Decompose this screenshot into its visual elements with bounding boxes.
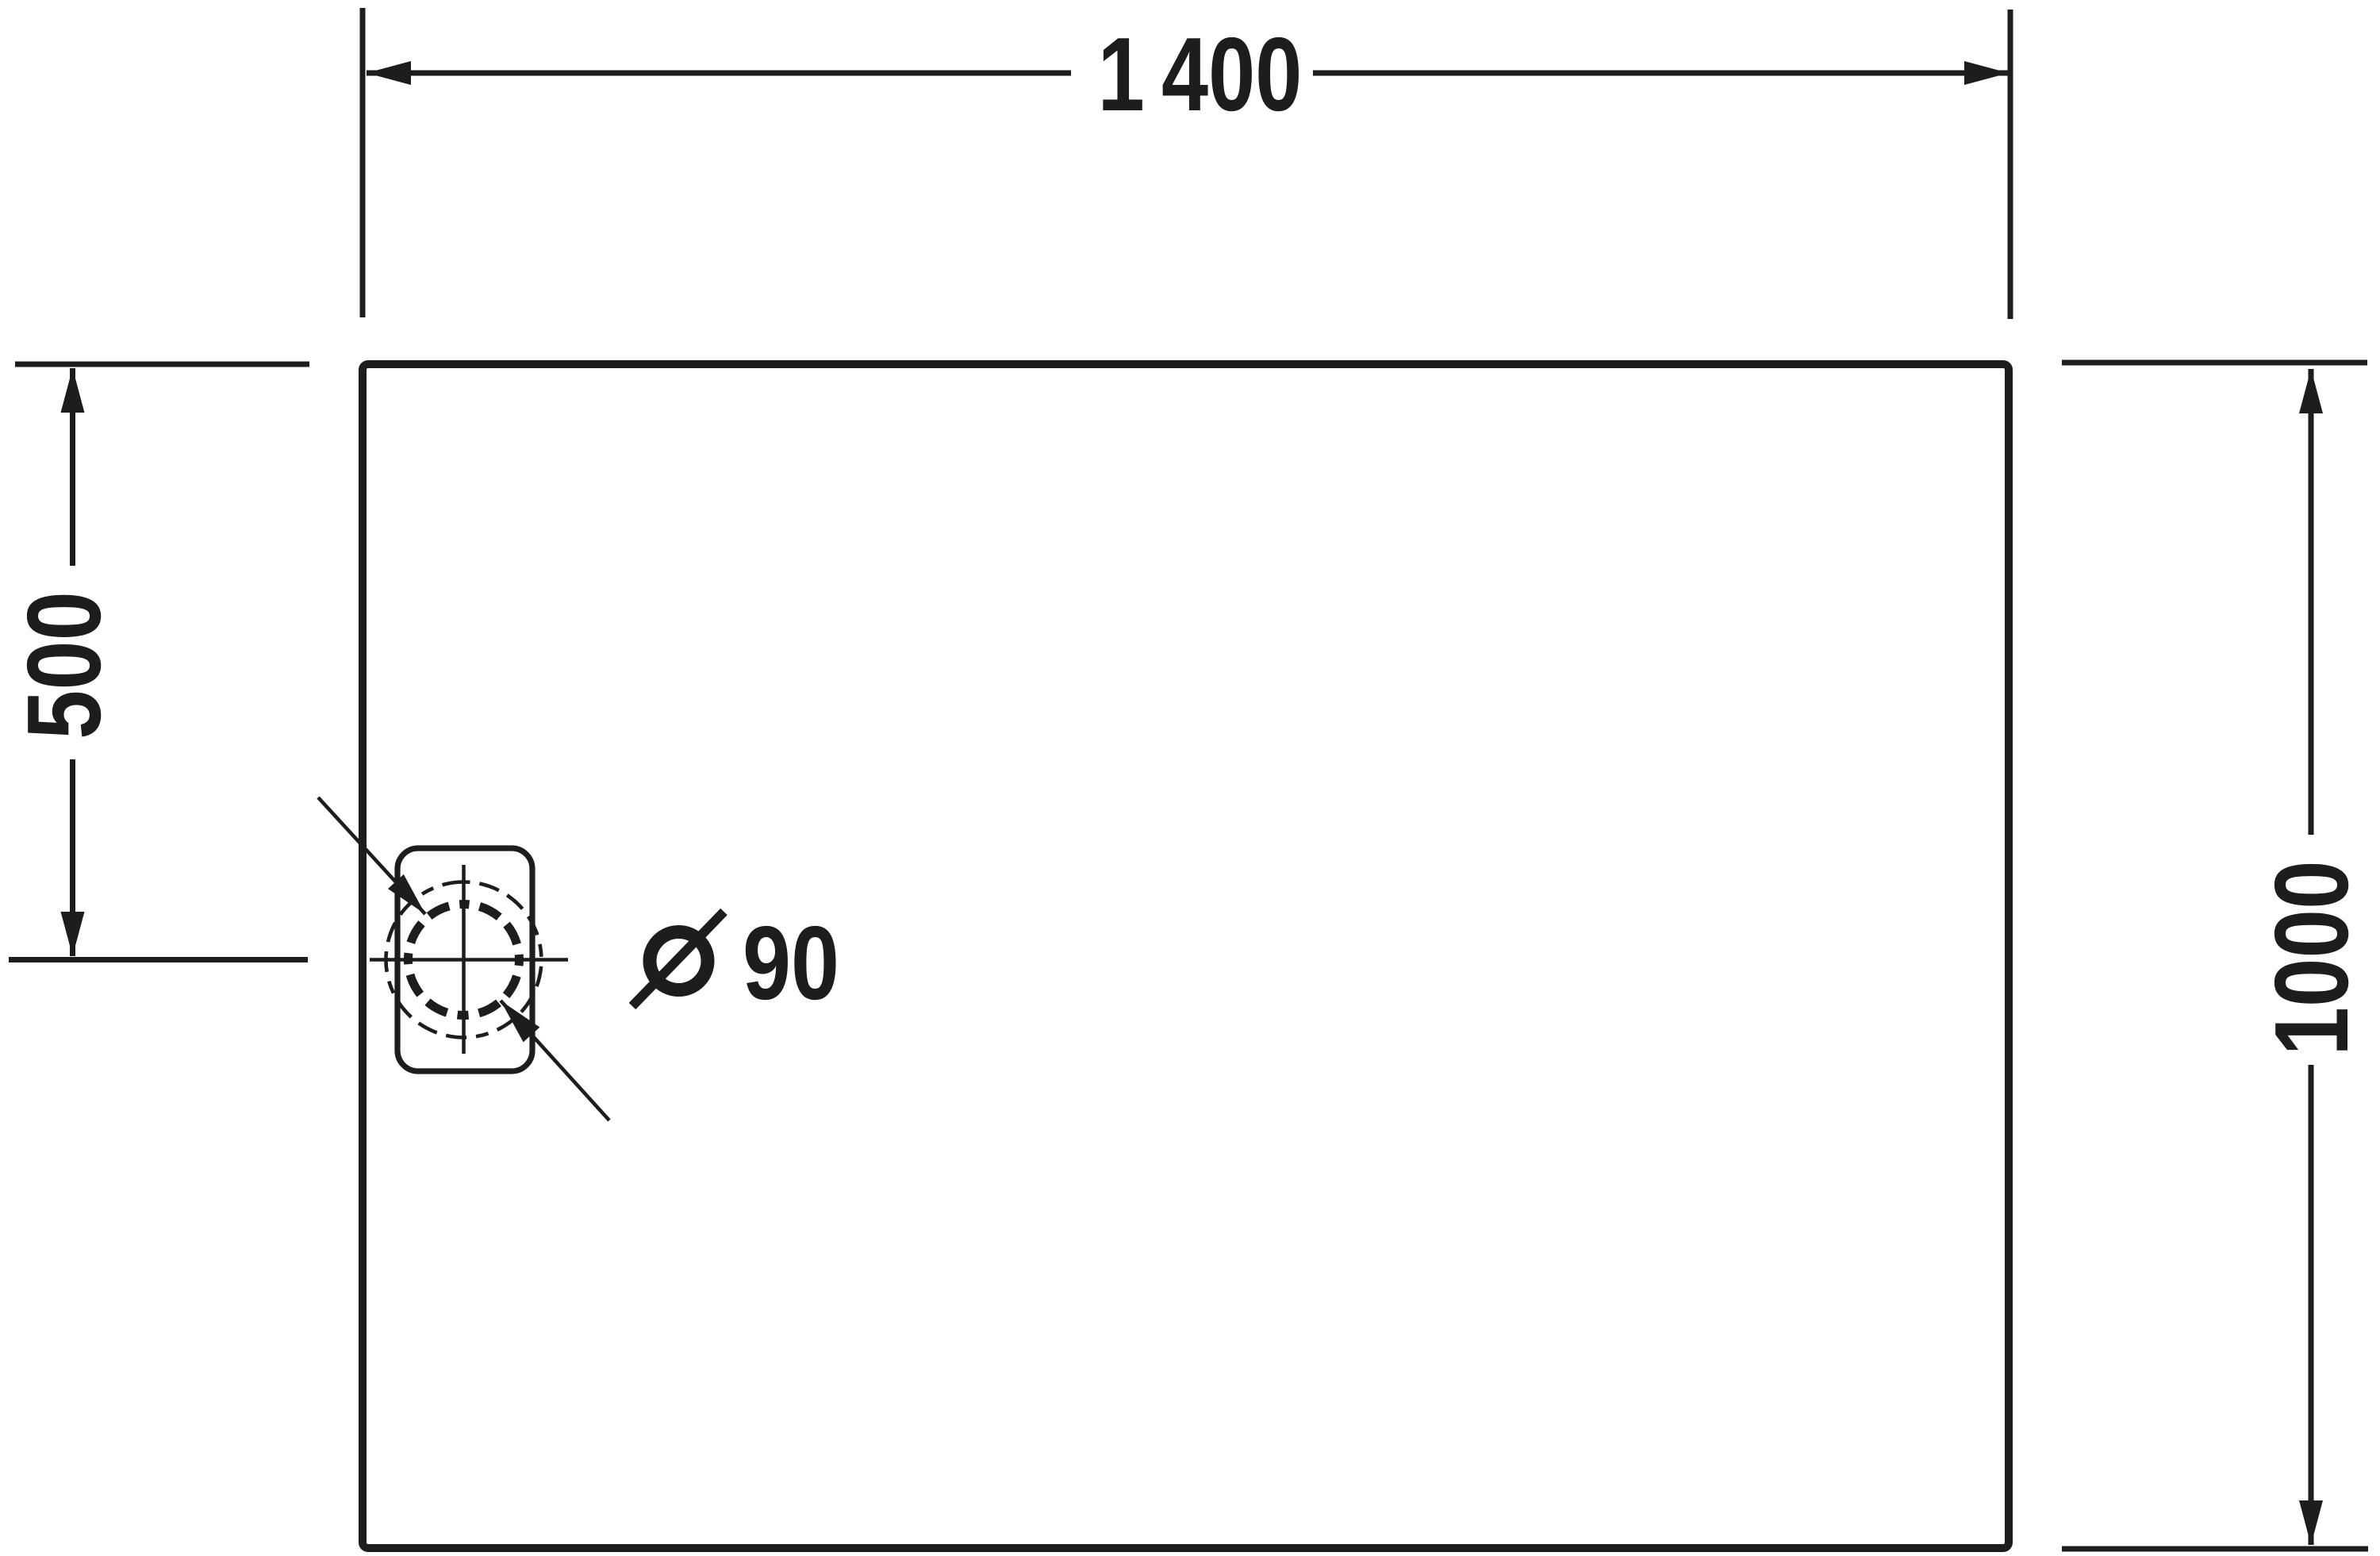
- svg-text:90: 90: [743, 904, 839, 1021]
- svg-text:1000: 1000: [2253, 860, 2370, 1055]
- svg-text:500: 500: [5, 591, 122, 740]
- svg-text:1 400: 1 400: [1098, 17, 1303, 133]
